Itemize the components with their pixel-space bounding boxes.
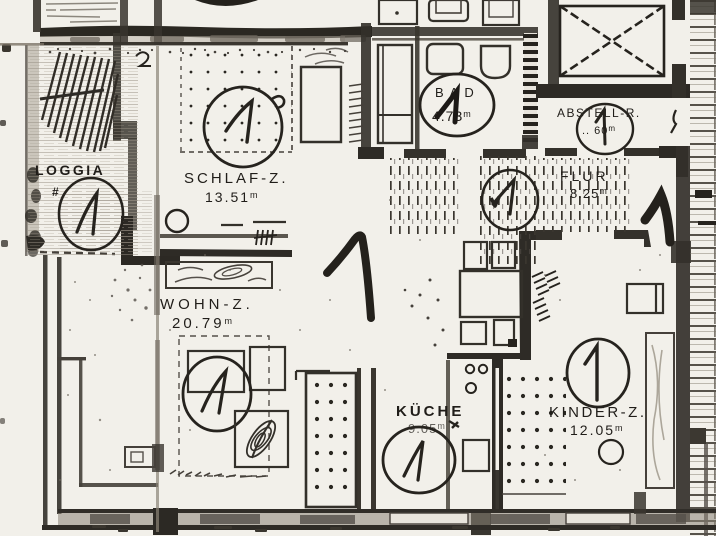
svg-text:LOGGIA: LOGGIA — [35, 162, 105, 178]
svg-text:FLUR: FLUR — [560, 168, 609, 184]
svg-text:#: # — [52, 185, 59, 199]
svg-text:KÜCHE: KÜCHE — [396, 403, 464, 420]
svg-text:WOHN-Z.: WOHN-Z. — [160, 296, 254, 313]
svg-text:KINDER-Z.: KINDER-Z. — [549, 404, 647, 421]
svg-text:SCHLAF-Z.: SCHLAF-Z. — [184, 170, 289, 187]
